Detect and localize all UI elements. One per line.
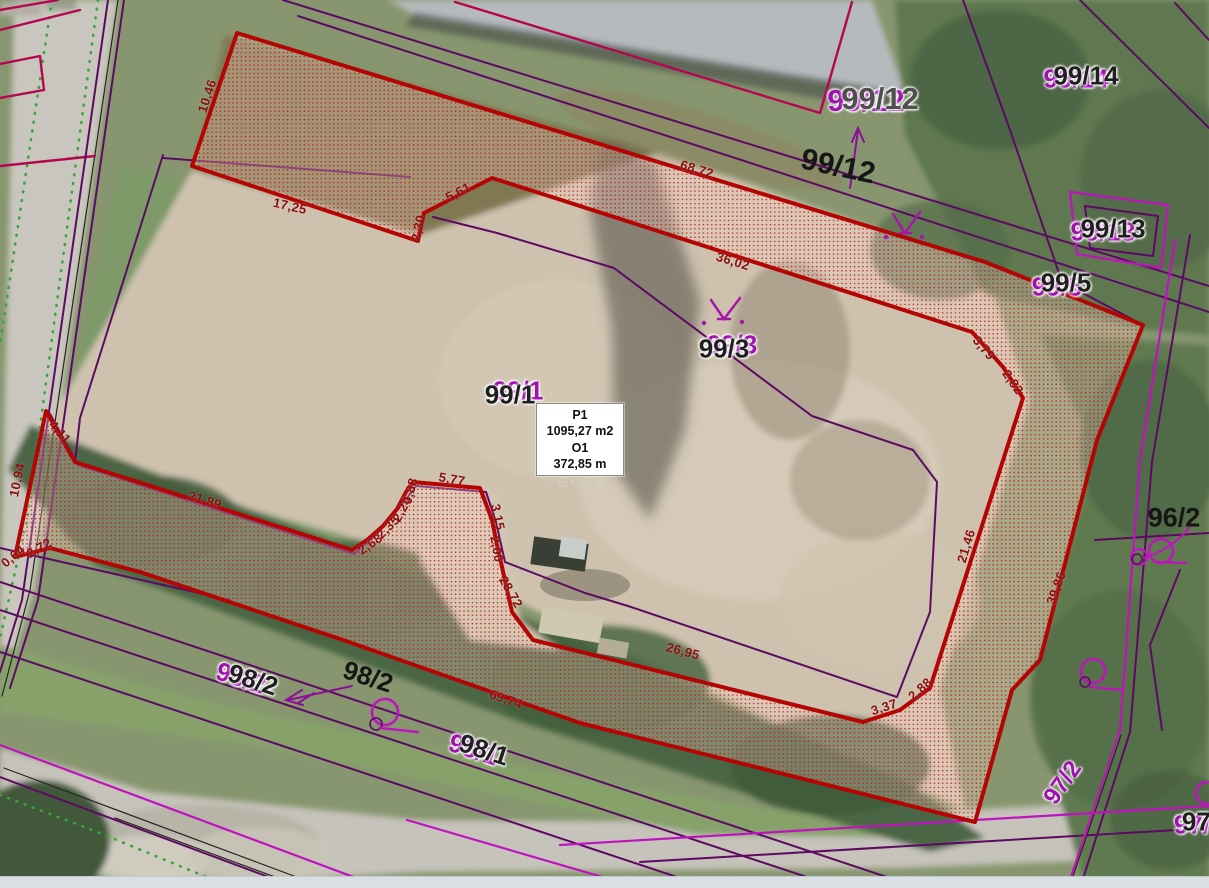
measurement-box: P1 1095,27 m2 O1 372,85 m: [536, 403, 624, 476]
measurement-area-value: 1095,27 m2: [539, 423, 621, 439]
measurement-point-label: P1: [539, 407, 621, 423]
measurement-perimeter-value: 372,85 m: [539, 456, 621, 472]
window-edge-bar: [0, 876, 1209, 888]
map-viewport[interactable]: 10,4617,252,305,6168,7236,023,792,8221,4…: [0, 0, 1209, 888]
measurement-perimeter-label: O1: [539, 440, 621, 456]
